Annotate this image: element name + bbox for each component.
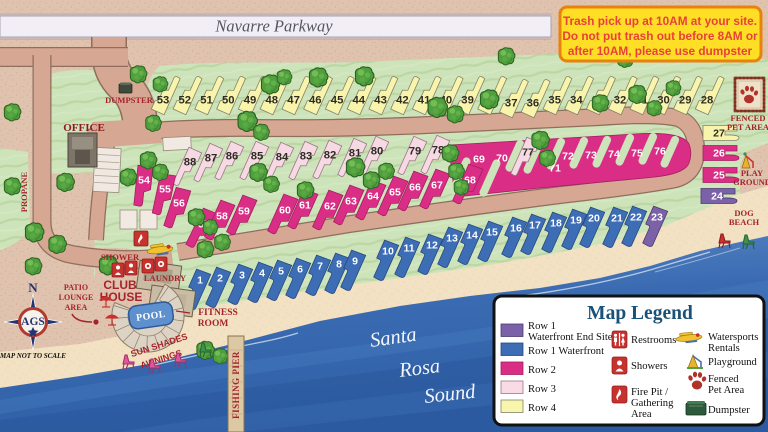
svg-text:OFFICE: OFFICE (63, 122, 105, 134)
svg-text:Navarre Parkway: Navarre Parkway (214, 17, 333, 36)
svg-text:12: 12 (426, 240, 438, 252)
svg-text:GROUND: GROUND (733, 177, 768, 187)
svg-text:39: 39 (461, 95, 474, 107)
svg-text:67: 67 (431, 180, 443, 192)
svg-text:4: 4 (259, 268, 265, 280)
svg-text:18: 18 (550, 218, 562, 230)
svg-text:22: 22 (630, 212, 642, 224)
svg-text:Row 4: Row 4 (528, 403, 557, 414)
svg-text:PATIO: PATIO (64, 283, 88, 292)
svg-text:83: 83 (300, 151, 313, 163)
svg-text:69: 69 (473, 154, 485, 166)
svg-text:Fenced: Fenced (708, 374, 739, 385)
svg-text:Fire Pit /: Fire Pit / (631, 387, 668, 398)
svg-text:27: 27 (713, 128, 725, 140)
svg-text:66: 66 (409, 182, 421, 194)
svg-text:Restrooms: Restrooms (631, 335, 676, 346)
svg-text:Map Legend: Map Legend (587, 303, 693, 324)
svg-text:Row 1: Row 1 (528, 321, 556, 332)
svg-text:43: 43 (374, 95, 387, 107)
svg-text:20: 20 (588, 213, 600, 225)
svg-text:58: 58 (216, 211, 228, 223)
svg-text:79: 79 (409, 146, 422, 158)
svg-text:82: 82 (324, 150, 337, 162)
svg-text:Showers: Showers (631, 361, 668, 372)
svg-text:DUMPSTER: DUMPSTER (105, 95, 154, 105)
svg-text:72: 72 (562, 151, 574, 163)
svg-text:26: 26 (713, 148, 725, 160)
svg-text:FISHING PIER: FISHING PIER (231, 351, 241, 419)
svg-text:AREA: AREA (65, 303, 88, 312)
svg-text:46: 46 (309, 95, 322, 107)
svg-text:5: 5 (278, 266, 284, 278)
svg-text:86: 86 (226, 151, 239, 163)
svg-text:Gathering: Gathering (631, 398, 674, 409)
svg-text:61: 61 (299, 200, 311, 212)
svg-text:45: 45 (331, 95, 344, 107)
svg-text:Pet Area: Pet Area (708, 385, 744, 396)
svg-text:SHOWER: SHOWER (101, 252, 140, 262)
svg-text:3: 3 (239, 270, 245, 282)
svg-text:60: 60 (279, 205, 291, 217)
svg-text:64: 64 (367, 191, 379, 203)
svg-text:LAUNDRY: LAUNDRY (144, 273, 186, 283)
svg-text:28: 28 (701, 95, 714, 107)
svg-text:15: 15 (486, 227, 498, 239)
svg-text:35: 35 (548, 95, 561, 107)
svg-text:8: 8 (336, 259, 342, 271)
svg-text:after 10AM, please use dumpste: after 10AM, please use dumpster (568, 44, 753, 58)
svg-text:50: 50 (222, 95, 235, 107)
svg-text:74: 74 (608, 149, 620, 161)
svg-text:55: 55 (159, 184, 171, 196)
svg-text:76: 76 (654, 146, 666, 158)
svg-text:59: 59 (238, 206, 250, 218)
svg-text:BEACH: BEACH (729, 217, 760, 227)
svg-text:56: 56 (173, 198, 185, 210)
svg-text:Waterfront End Site: Waterfront End Site (528, 332, 613, 343)
svg-text:52: 52 (179, 95, 192, 107)
svg-text:84: 84 (276, 152, 289, 164)
svg-text:70: 70 (496, 153, 508, 165)
svg-text:Row 2: Row 2 (528, 365, 556, 376)
svg-text:32: 32 (614, 95, 627, 107)
svg-text:13: 13 (446, 233, 458, 245)
svg-text:87: 87 (205, 153, 218, 165)
svg-text:Area: Area (631, 409, 652, 420)
svg-text:PROPANE: PROPANE (19, 171, 29, 212)
svg-text:48: 48 (266, 95, 279, 107)
svg-text:MAP NOT TO SCALE: MAP NOT TO SCALE (0, 352, 66, 360)
svg-text:17: 17 (529, 220, 541, 232)
svg-text:24: 24 (711, 191, 723, 203)
svg-text:11: 11 (403, 243, 414, 255)
svg-text:85: 85 (251, 151, 264, 163)
svg-text:ROOM: ROOM (198, 319, 229, 329)
svg-text:6: 6 (297, 264, 303, 276)
svg-text:34: 34 (570, 95, 583, 107)
svg-text:9: 9 (352, 256, 358, 268)
svg-text:19: 19 (570, 215, 582, 227)
svg-text:2: 2 (217, 273, 223, 285)
svg-text:N: N (28, 280, 38, 295)
svg-text:PET AREA: PET AREA (727, 122, 768, 132)
svg-text:88: 88 (184, 157, 197, 169)
svg-text:Trash pick up at 10AM at your: Trash pick up at 10AM at your site. (563, 14, 757, 28)
svg-text:10: 10 (382, 246, 394, 258)
svg-text:65: 65 (389, 187, 401, 199)
svg-text:FITNESS: FITNESS (198, 308, 238, 318)
svg-text:62: 62 (324, 201, 336, 213)
svg-text:75: 75 (631, 148, 643, 160)
svg-text:21: 21 (611, 213, 623, 225)
svg-text:Do not put trash out before 8A: Do not put trash out before 8AM or (562, 29, 758, 43)
svg-text:54: 54 (138, 175, 150, 187)
svg-text:16: 16 (510, 223, 522, 235)
svg-text:80: 80 (371, 146, 384, 158)
svg-text:63: 63 (345, 196, 357, 208)
svg-text:29: 29 (679, 95, 692, 107)
svg-text:Row 3: Row 3 (528, 384, 556, 395)
svg-text:47: 47 (287, 95, 300, 107)
svg-text:37: 37 (505, 98, 518, 110)
svg-text:23: 23 (651, 212, 663, 224)
svg-text:Playground: Playground (708, 357, 758, 368)
svg-text:LOUNGE: LOUNGE (59, 293, 94, 302)
svg-text:Watersports: Watersports (708, 332, 758, 343)
svg-text:Row 1 Waterfront: Row 1 Waterfront (528, 346, 604, 357)
svg-text:7: 7 (317, 261, 323, 273)
svg-text:36: 36 (527, 98, 540, 110)
svg-text:AGS: AGS (21, 316, 45, 328)
svg-text:1: 1 (197, 275, 203, 287)
svg-text:25: 25 (713, 170, 725, 182)
svg-text:14: 14 (466, 230, 478, 242)
svg-text:Rentals: Rentals (708, 343, 740, 354)
svg-text:Dumpster: Dumpster (708, 405, 750, 416)
svg-text:42: 42 (396, 95, 409, 107)
svg-text:53: 53 (157, 95, 170, 107)
svg-text:49: 49 (244, 95, 257, 107)
svg-text:44: 44 (353, 95, 366, 107)
svg-text:73: 73 (585, 150, 597, 162)
svg-text:77: 77 (522, 147, 534, 159)
svg-text:51: 51 (200, 95, 213, 107)
